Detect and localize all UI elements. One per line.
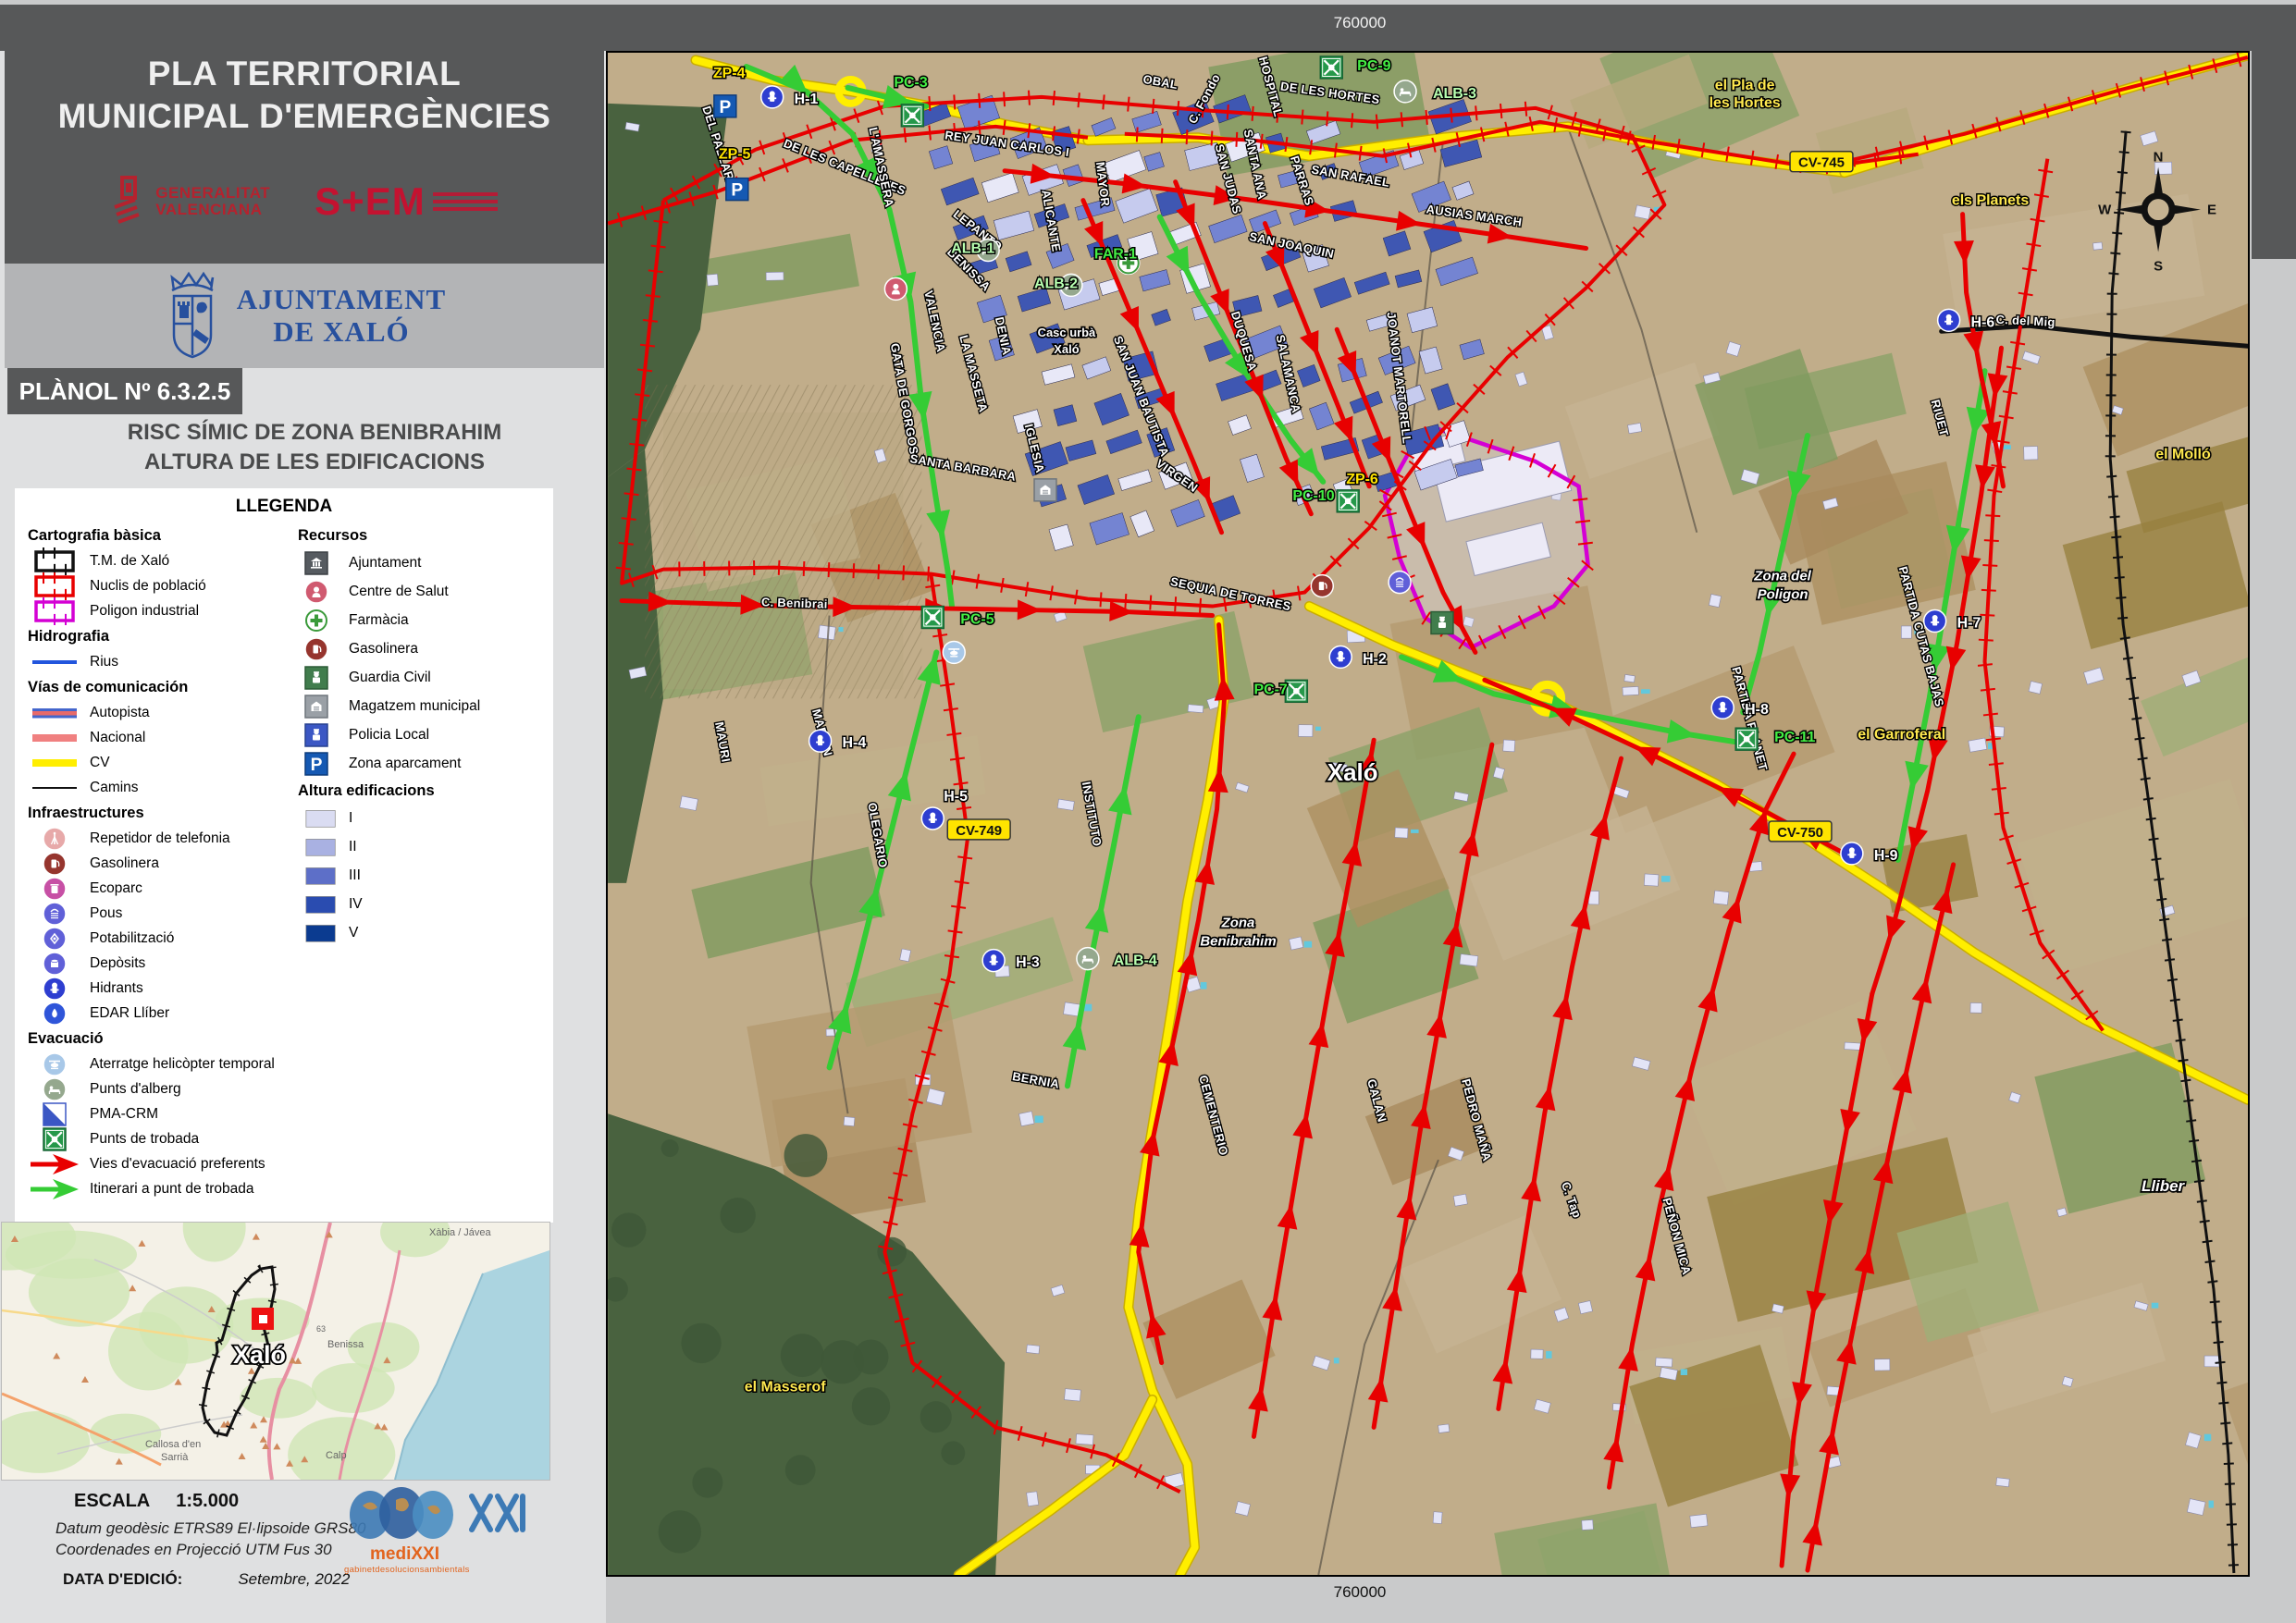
legend-swatch-fill-3 [298,862,340,890]
legend-item: Pous [28,901,298,926]
legend-item-label: II [349,839,357,855]
legend-item: Punts d'alberg [28,1076,298,1101]
legend-section-header: Recursos [298,523,546,548]
edar-icon [28,1001,81,1027]
svg-text:el Pla de: el Pla de [1715,78,1775,93]
hydrant-icon [1938,309,1960,331]
svg-text:les Hortes: les Hortes [1710,95,1781,111]
svg-text:FAR-1: FAR-1 [1094,246,1137,262]
legend-section-header: Cartografia bàsica [28,523,298,548]
legend-item-label: Depòsits [90,955,145,972]
town-icon [305,552,327,574]
legend-item: Policia Local [298,720,546,749]
scale-info: ESCALA1:5.000 [48,1491,239,1512]
hydrant-icon [28,976,81,1002]
warehouse-icon [298,694,340,719]
pma-icon [28,1101,81,1127]
legend-column-left: Cartografia bàsicaT.M. de XalóNuclis de … [28,523,298,1201]
hydrant-icon [921,807,944,830]
inset-location-map: XalóBenissaCalpCallosa d'enSarriàXàbia /… [2,1223,549,1480]
legend-item-label: Punts d'alberg [90,1081,181,1098]
police-icon [298,722,340,748]
hydrant-icon [809,730,832,752]
title-block: PLA TERRITORIALMUNICIPAL D'EMERGÈNCIES G… [5,5,604,264]
health-icon [298,579,340,605]
svg-text:els Planets: els Planets [1952,193,2029,209]
legend-item: Aterratge helicòpter temporal [28,1051,298,1076]
svg-text:C. Benibrai: C. Benibrai [761,595,828,610]
map-area[interactable]: DEL PALLARESDE LES CAPELLETESL'AMASSERAR… [606,51,2250,1577]
svg-text:63: 63 [316,1324,326,1334]
svg-text:Xàbia / Jávea: Xàbia / Jávea [429,1227,492,1238]
hydrant-icon [761,86,784,108]
svg-text:H-2: H-2 [1363,651,1387,667]
document-title: PLA TERRITORIALMUNICIPAL D'EMERGÈNCIES [5,53,604,139]
svg-text:CV-745: CV-745 [1798,155,1845,171]
legend-item-label: IV [349,896,363,913]
marker-ZP-6[interactable]: ZP-6 [1346,472,1378,487]
meeting-icon [901,105,923,127]
sem-bars-decoration [433,192,498,211]
legend-item-label: Punts de trobada [90,1131,199,1148]
gas-icon [298,636,340,662]
edar-icon [43,1002,66,1025]
svg-text:CV-749: CV-749 [956,823,1002,839]
sem-logo: S+EM [315,179,498,224]
potab-icon [28,926,81,952]
meeting-icon [1285,680,1307,702]
meeting-icon [1735,728,1758,750]
legend-item: Ajuntament [298,548,546,577]
legend-item-label: Camins [90,780,139,796]
legend-swatch-line-camins [28,774,81,802]
legend-swatch-line-blue [28,648,81,676]
shelter-icon [28,1076,81,1102]
legend-item-label: PMA-CRM [90,1106,158,1123]
town-icon [298,550,340,576]
legend-item-label: Ajuntament [349,555,421,572]
generalitat-emblem-icon [111,176,146,227]
svg-text:H-8: H-8 [1745,702,1769,718]
svg-text:ALB-3: ALB-3 [1433,86,1476,102]
legend-item: III [298,861,546,890]
legend-item: PMA-CRM [28,1101,298,1126]
generalitat-text: GENERALITATVALENCIANA [155,185,270,218]
svg-text:Casc urbà: Casc urbà [1038,326,1096,339]
legend-item: Nuclis de població [28,573,298,598]
repeater-icon [28,826,81,852]
marker-warehouse[interactable] [1034,479,1056,501]
legend-item: Vies d'evacuació preferents [28,1151,298,1176]
marker-gas[interactable] [1311,575,1333,597]
parking-icon: P [305,753,327,775]
legend-item: Autopista [28,700,298,725]
legend-item-label: Repetidor de telefonia [90,830,230,847]
generalitat-valenciana-logo: GENERALITATVALENCIANA [111,176,270,227]
legend-item-label: Nacional [90,730,145,746]
marker-health[interactable] [884,277,907,300]
marker-guardia[interactable] [1431,612,1453,634]
legend-item: Camins [28,775,298,800]
pous-icon [43,903,66,925]
svg-text:Xaló: Xaló [233,1341,286,1369]
svg-text:el Molló: el Molló [2155,447,2211,462]
legend-item-label: EDAR Llíber [90,1005,169,1022]
svg-text:ZP-4: ZP-4 [713,66,746,81]
legend-item-label: Nuclis de població [90,578,206,595]
depos-icon [28,951,81,977]
datum-line-2: Coordenades en Projecció UTM Fus 30 [56,1541,332,1559]
hydrant-icon [43,977,66,1000]
meeting-icon [1337,490,1359,512]
legend-section-header: Vías de comunicación [28,674,298,700]
svg-text:H-9: H-9 [1874,848,1898,864]
legend-swatch-fill-2 [298,833,340,861]
hydrant-icon [1329,646,1352,668]
legend-item: Potabilització [28,926,298,951]
svg-text:ALB-4: ALB-4 [1114,953,1157,969]
marker-heli[interactable] [943,641,965,663]
svg-text:PC-5: PC-5 [960,611,994,627]
legend-section-header: Hidrografia [28,623,298,649]
legend-swatch-fill-5 [298,919,340,947]
legend-swatch-zone-black [28,547,81,575]
plan-number-box: PLÀNOL Nº 6.3.2.5 [7,368,242,414]
svg-text:ALB-1: ALB-1 [951,240,994,256]
legend-item: PZona aparcament [298,749,546,778]
ajuntament-name: AJUNTAMENTDE XALÓ [237,284,446,347]
legend-item: Gasolinera [28,851,298,876]
meeting-icon [43,1128,66,1150]
datum-line-1: Datum geodèsic ETRS89 El·lipsoide GRS80 [56,1519,365,1538]
legend-item: Rius [28,649,298,674]
legend-swatch-zone-magenta [28,597,81,625]
svg-text:H-6: H-6 [1971,314,1995,330]
svg-text:el Garroferal: el Garroferal [1858,727,1945,743]
svg-text:H-4: H-4 [843,735,867,751]
legend-item-label: Gasolinera [349,641,418,658]
legend-item-label: Pous [90,905,122,922]
svg-text:ALB-2: ALB-2 [1034,276,1078,291]
svg-text:PC-7: PC-7 [1253,682,1287,697]
legend-swatch-arrow-green [28,1175,81,1203]
legend-item-label: Ecoparc [90,880,142,897]
svg-text:P: P [731,181,743,201]
warehouse-icon [305,695,327,718]
plan-subtitle: RISC SÍMIC DE ZONA BENIBRAHIMALTURA DE L… [37,418,592,478]
legend-item-label: Zona aparcament [349,756,462,772]
legend-item: Magatzem municipal [298,692,546,720]
legend-item-label: CV [90,755,110,771]
parking-icon: P [298,751,340,777]
pharmacy-icon [305,609,327,632]
heli-icon [43,1053,66,1076]
legend-swatch-line-autopista [28,699,81,727]
svg-text:Poligon: Poligon [1758,587,1808,603]
pous-icon [28,901,81,927]
gas-icon [28,851,81,877]
gas-icon [43,853,66,875]
svg-text:PC-11: PC-11 [1774,730,1815,745]
marker-pous[interactable] [1389,572,1411,594]
gas-icon [1311,575,1333,597]
map-coordinate-top: 760000 [1277,14,1443,32]
legend-section-header: Altura edificacions [298,778,546,804]
depos-icon [43,953,66,975]
legend-item-label: Autopista [90,705,150,721]
legend-item-label: Magatzem municipal [349,698,480,715]
hydrant-icon [1841,842,1863,865]
legend-item: Gasolinera [298,634,546,663]
legend-item: T.M. de Xaló [28,548,298,573]
legend-item-label: Itinerari a punt de trobada [90,1181,254,1198]
health-icon [305,581,327,603]
legend-item: EDAR Llíber [28,1001,298,1026]
potab-icon [43,928,66,950]
svg-text:W: W [2098,203,2112,218]
svg-text:H-5: H-5 [944,789,968,805]
svg-text:Xaló: Xaló [1327,760,1378,786]
medixxi-globes-icon [344,1487,529,1543]
heli-icon [28,1051,81,1077]
medixxi-subtitle: gabinetdesolucionsambientals [344,1565,470,1575]
map-coordinate-bottom: 760000 [1277,1583,1443,1602]
legend-item-label: Farmàcia [349,612,409,629]
svg-text:N: N [2154,150,2164,166]
legend-section-header: Evacuació [28,1026,298,1051]
legend-item: Punts de trobada [28,1126,298,1151]
legend-panel: LLEGENDA Cartografia bàsicaT.M. de XalóN… [15,488,553,1223]
svg-text:Callosa d'en: Callosa d'en [145,1439,201,1450]
legend-item: CV [28,750,298,775]
legend-item-label: Vies d'evacuació preferents [90,1156,265,1173]
legend-item-label: Poligon industrial [90,603,199,620]
svg-text:Sarrià: Sarrià [161,1452,189,1463]
svg-text:P: P [719,98,731,117]
legend-title: LLEGENDA [15,488,553,517]
svg-text:PC-10: PC-10 [1292,488,1334,504]
svg-text:P: P [311,756,323,775]
edition-date: DATA D'EDICIÓ:Setembre, 2022 [63,1570,350,1589]
legend-item-label: Centre de Salut [349,584,449,600]
shelter-icon [1394,80,1416,103]
legend-item: IV [298,890,546,918]
svg-text:Calp: Calp [326,1450,347,1461]
legend-swatch-line-nacional [28,724,81,752]
hydrant-icon [982,950,1005,972]
svg-text:S: S [2154,258,2163,274]
svg-text:H-7: H-7 [1957,615,1981,631]
svg-text:Zona del: Zona del [1753,569,1811,584]
legend-item: II [298,832,546,861]
legend-item-label: I [349,810,352,827]
ajuntament-band: AJUNTAMENTDE XALÓ [5,264,604,368]
meeting-icon [921,607,944,629]
ecoparc-icon [43,878,66,900]
legend-item-label: Potabilització [90,930,174,947]
legend-item-label: III [349,867,361,884]
guardia-icon [305,667,327,689]
legend-item: Depòsits [28,951,298,976]
svg-text:CV-750: CV-750 [1777,825,1823,841]
legend-item: Centre de Salut [298,577,546,606]
svg-text:Xaló: Xaló [1054,342,1079,356]
legend-section-header: Infraestructures [28,800,298,826]
police-icon [305,724,327,746]
pharmacy-icon [298,608,340,633]
gas-icon [305,638,327,660]
right-margin-strip [2252,5,2296,259]
medixxi-name: mediXXI [370,1544,439,1565]
svg-text:H-1: H-1 [795,92,819,107]
legend-item-label: T.M. de Xaló [90,553,169,570]
parking-icon: P [726,178,748,201]
pous-icon [1389,572,1411,594]
ajuntament-crest-icon [163,270,222,363]
legend-item: I [298,804,546,832]
guardia-icon [1431,612,1453,634]
hydrant-icon [1924,610,1946,633]
legend-item: V [298,918,546,947]
legend-swatch-line-cv [28,749,81,777]
svg-text:ZP-6: ZP-6 [1346,472,1378,487]
legend-swatch-fill-4 [298,891,340,918]
legend-item-label: Rius [90,654,118,670]
shelter-icon [43,1078,66,1100]
legend-item-label: V [349,925,358,941]
legend-column-right: RecursosAjuntamentCentre de SalutFarmàci… [298,523,546,1201]
guardia-icon [298,665,340,691]
legend-item: Guardia Civil [298,663,546,692]
svg-text:el Masserof: el Masserof [745,1379,826,1395]
hydrant-icon [1711,696,1734,719]
legend-item: Repetidor de telefonia [28,826,298,851]
legend-item-label: Gasolinera [90,855,159,872]
svg-text:ZP-5: ZP-5 [719,147,751,163]
svg-text:H-3: H-3 [1016,955,1040,971]
svg-text:PC-3: PC-3 [894,75,927,91]
pma-icon [43,1103,66,1125]
meeting-icon [28,1126,81,1152]
medixxi-logo: mediXXI gabinetdesolucionsambientals [344,1487,566,1580]
svg-text:PC-9: PC-9 [1357,58,1390,74]
legend-swatch-arrow-red [28,1150,81,1178]
meeting-icon [1320,56,1342,79]
legend-item: Nacional [28,725,298,750]
legend-item: Itinerari a punt de trobada [28,1176,298,1201]
svg-text:Lliber: Lliber [2142,1177,2186,1195]
legend-item-label: Guardia Civil [349,670,431,686]
legend-item: Farmàcia [298,606,546,634]
parking-icon: P [714,95,736,117]
legend-item-label: Aterratge helicòpter temporal [90,1056,275,1073]
ecoparc-icon [28,876,81,902]
legend-item-label: Policia Local [349,727,429,744]
shelter-icon [1077,948,1099,970]
warehouse-icon [1034,479,1056,501]
legend-item-label: Hidrants [90,980,143,997]
repeater-icon [43,828,66,850]
legend-swatch-fill-1 [298,805,340,832]
svg-text:Zona: Zona [1221,916,1255,931]
legend-item: Hidrants [28,976,298,1001]
sem-text: S+EM [315,179,426,224]
health-icon [884,277,907,300]
legend-item: Poligon industrial [28,598,298,623]
legend-swatch-zone-red [28,572,81,600]
svg-text:E: E [2207,203,2216,218]
legend-item: Ecoparc [28,876,298,901]
svg-text:Benibrahim: Benibrahim [1200,934,1276,950]
heli-icon [943,641,965,663]
svg-text:Benissa: Benissa [327,1339,364,1350]
